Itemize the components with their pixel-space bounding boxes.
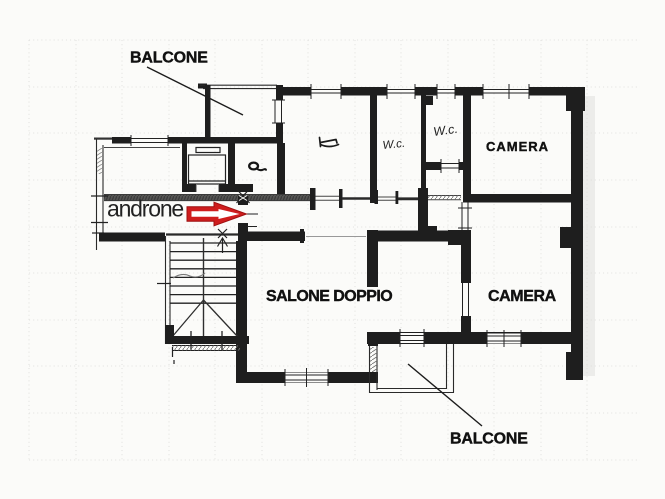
svg-text:CAMERA: CAMERA xyxy=(486,139,549,154)
svg-text:SALONE DOPPIO: SALONE DOPPIO xyxy=(266,288,392,305)
svg-text:BALCONE: BALCONE xyxy=(450,431,528,448)
svg-text:W.c.: W.c. xyxy=(382,138,406,152)
svg-text:CAMERA: CAMERA xyxy=(488,288,557,305)
svg-text:androne: androne xyxy=(107,196,183,222)
svg-text:BALCONE: BALCONE xyxy=(130,50,208,67)
